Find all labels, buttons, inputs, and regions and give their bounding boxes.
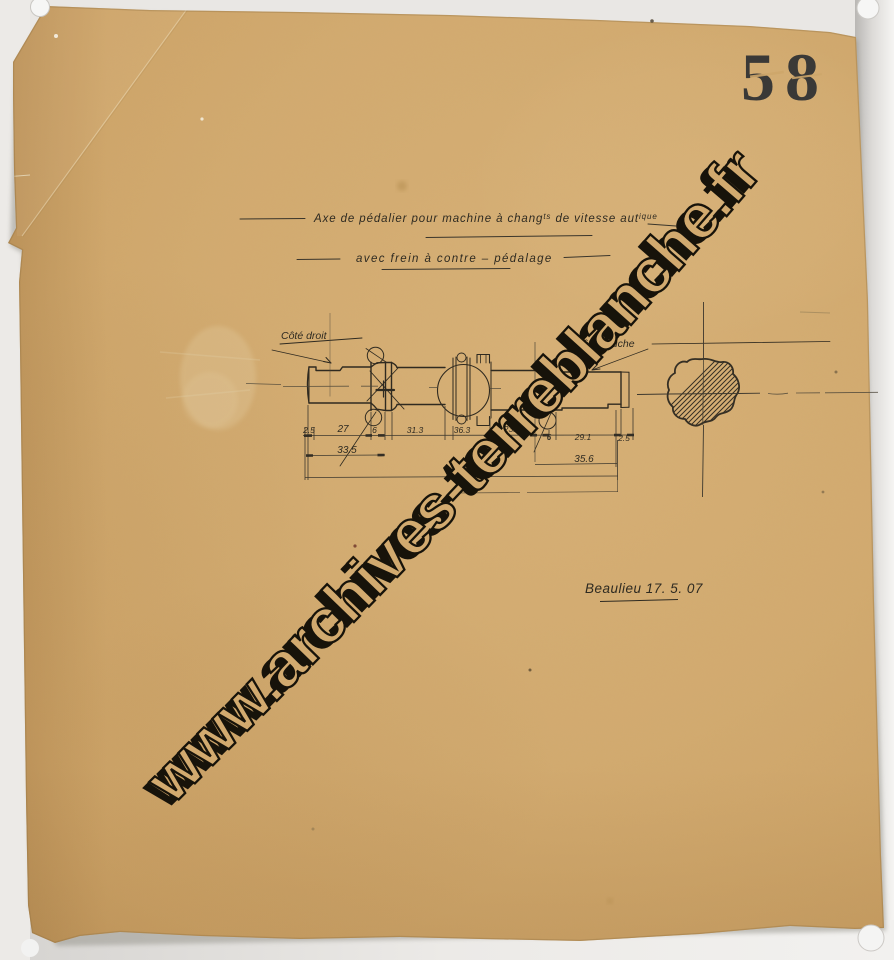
svg-text:35.6: 35.6	[574, 454, 594, 465]
svg-text:avec frein à contre – pédalage: avec frein à contre – pédalage	[356, 253, 553, 265]
svg-text:Axe de pédalier pour machine à: Axe de pédalier pour machine à changts d…	[313, 212, 658, 225]
svg-text:31.3: 31.3	[407, 425, 424, 435]
svg-text:Beaulieu 17. 5. 07: Beaulieu 17. 5. 07	[585, 581, 703, 596]
svg-text:29.1: 29.1	[574, 432, 592, 442]
svg-text:6: 6	[372, 425, 377, 435]
svg-text:2.5: 2.5	[302, 425, 315, 435]
svg-text:33.5: 33.5	[337, 445, 357, 456]
svg-text:2.5: 2.5	[617, 433, 630, 443]
svg-text:Côté droit: Côté droit	[281, 330, 328, 342]
svg-text:27: 27	[336, 424, 349, 435]
